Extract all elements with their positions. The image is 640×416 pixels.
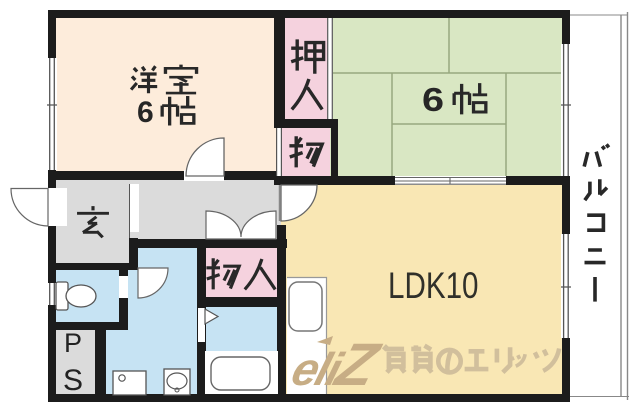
svg-text:LDK10: LDK10 — [388, 266, 478, 307]
svg-text:6: 6 — [137, 96, 154, 129]
svg-text:6: 6 — [422, 81, 444, 118]
svg-text:P: P — [64, 328, 82, 358]
svg-text:S: S — [63, 364, 83, 397]
